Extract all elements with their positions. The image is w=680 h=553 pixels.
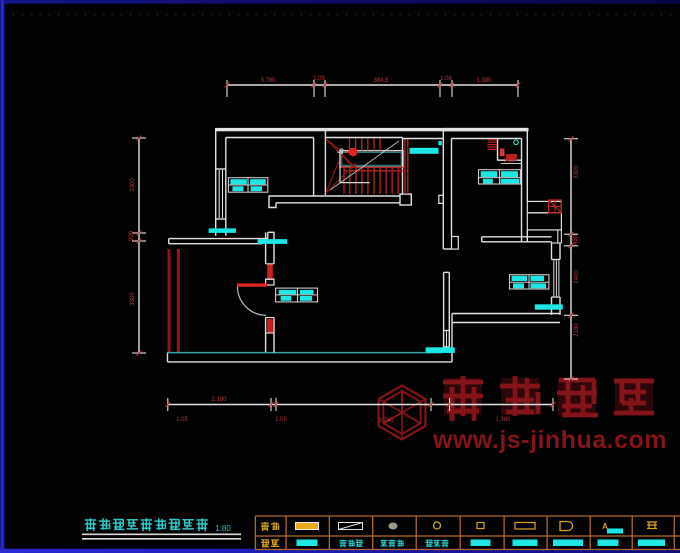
svg-text:3.780: 3.780 <box>378 418 394 424</box>
svg-text:1.380: 1.380 <box>495 417 511 423</box>
svg-text:1.05: 1.05 <box>275 417 287 423</box>
svg-text:1.08: 1.08 <box>440 76 452 82</box>
svg-text:900: 900 <box>129 230 135 241</box>
svg-text:2.180: 2.180 <box>211 397 227 403</box>
svg-text:450: 450 <box>573 234 579 245</box>
svg-text:3300: 3300 <box>574 165 580 179</box>
svg-text:2180: 2180 <box>574 323 580 337</box>
svg-text:1.05: 1.05 <box>176 417 188 423</box>
svg-text:1450: 1450 <box>503 158 514 164</box>
svg-text:3300: 3300 <box>130 178 136 192</box>
svg-text:3300: 3300 <box>130 292 136 306</box>
svg-text:1:80: 1:80 <box>215 524 231 533</box>
svg-text:3.780: 3.780 <box>260 78 276 84</box>
svg-text:2400: 2400 <box>574 270 580 284</box>
svg-text:1.380: 1.380 <box>476 78 492 84</box>
svg-text:www.js-jinhua.com: www.js-jinhua.com <box>432 426 667 454</box>
svg-text:1.05: 1.05 <box>313 76 325 82</box>
svg-text:384.5: 384.5 <box>373 78 389 84</box>
